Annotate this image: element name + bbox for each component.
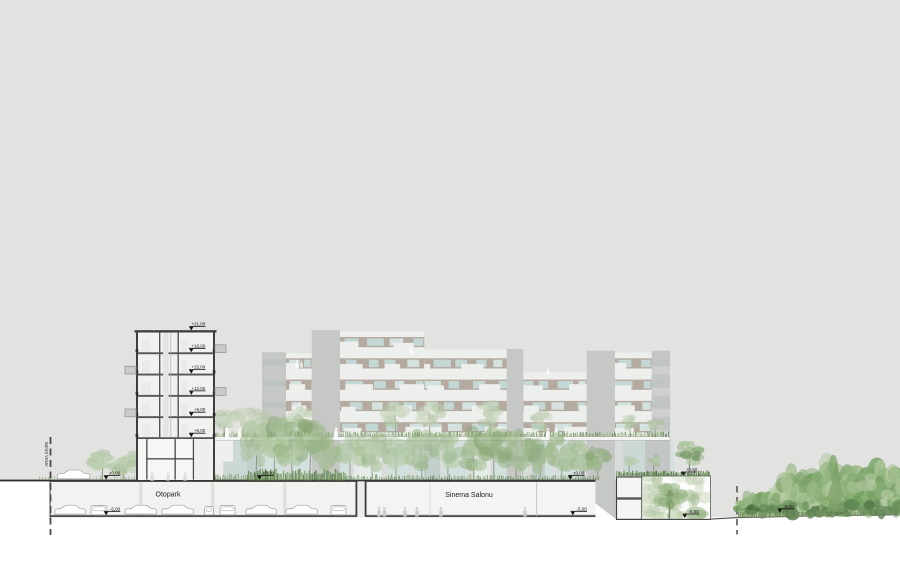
svg-text:-5,00: -5,00: [577, 506, 588, 511]
svg-text:-5,50: -5,50: [689, 509, 700, 514]
svg-text:+15,00: +15,00: [191, 365, 205, 370]
svg-text:Otopark: Otopark: [156, 492, 181, 499]
svg-text:±0,00: ±0,00: [109, 471, 121, 476]
svg-text:ARSA SINIRI: ARSA SINIRI: [44, 442, 49, 467]
svg-text:-5,00: -5,00: [784, 504, 795, 509]
svg-text:+9,00: +9,00: [194, 407, 206, 412]
svg-text:-5,00: -5,00: [110, 506, 121, 511]
svg-text:+21,00: +21,00: [191, 322, 205, 327]
svg-text:Sinema Salonu: Sinema Salonu: [445, 492, 493, 499]
svg-text:+0,50: +0,50: [686, 467, 698, 472]
svg-text:±0,00: ±0,00: [262, 471, 274, 476]
svg-text:+12,00: +12,00: [191, 386, 205, 391]
svg-text:+18,00: +18,00: [191, 343, 205, 348]
svg-text:+6,00: +6,00: [194, 428, 206, 433]
svg-text:±0,00: ±0,00: [573, 471, 585, 476]
